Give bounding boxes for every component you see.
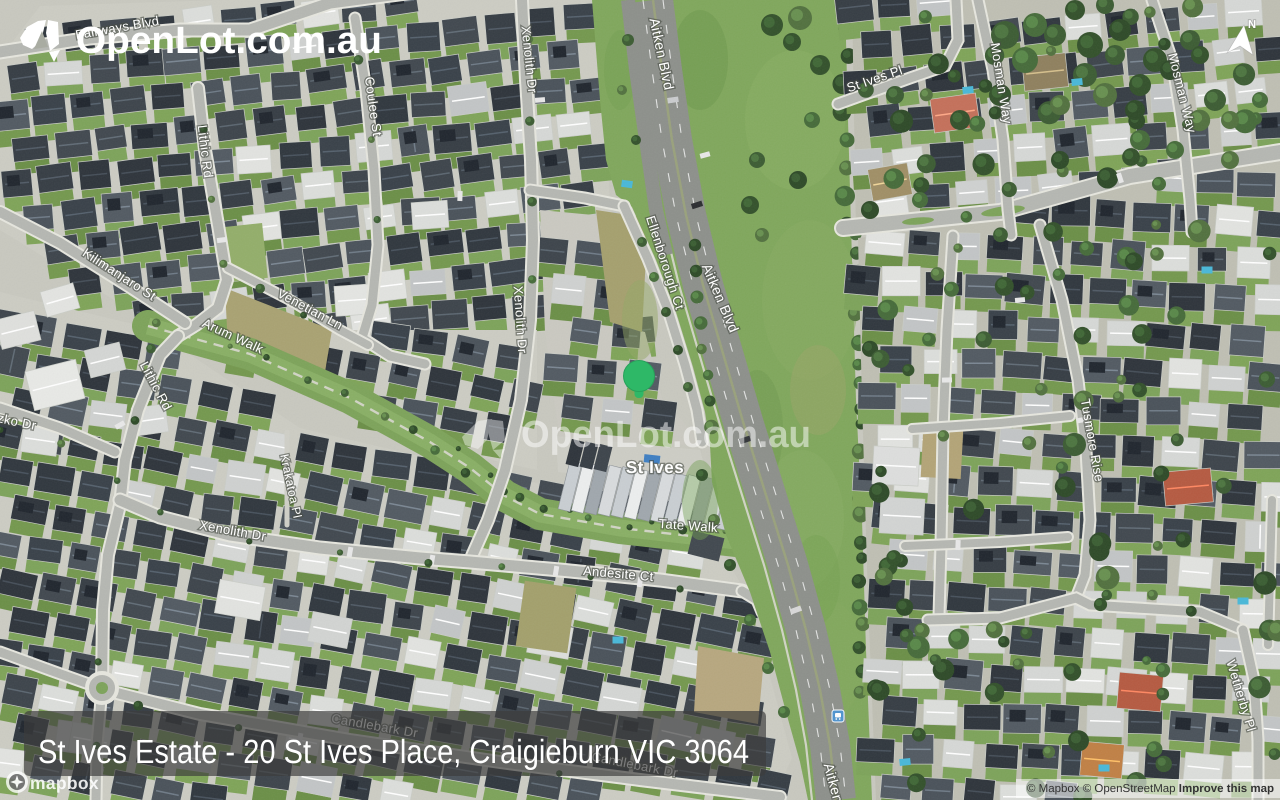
svg-text:St Ives Estate - 20 St Ives Pl: St Ives Estate - 20 St Ives Place, Craig…: [38, 734, 749, 771]
svg-text:St Ives: St Ives: [626, 458, 684, 477]
svg-text:© Mapbox © OpenStreetMap Impro: © Mapbox © OpenStreetMap Improve this ma…: [1027, 783, 1274, 795]
svg-text:mapbox: mapbox: [30, 773, 99, 793]
svg-text:OpenLot.com.au: OpenLot.com.au: [76, 20, 382, 62]
svg-text:OpenLot.com.au: OpenLot.com.au: [521, 414, 811, 456]
svg-text:N: N: [1248, 19, 1256, 31]
